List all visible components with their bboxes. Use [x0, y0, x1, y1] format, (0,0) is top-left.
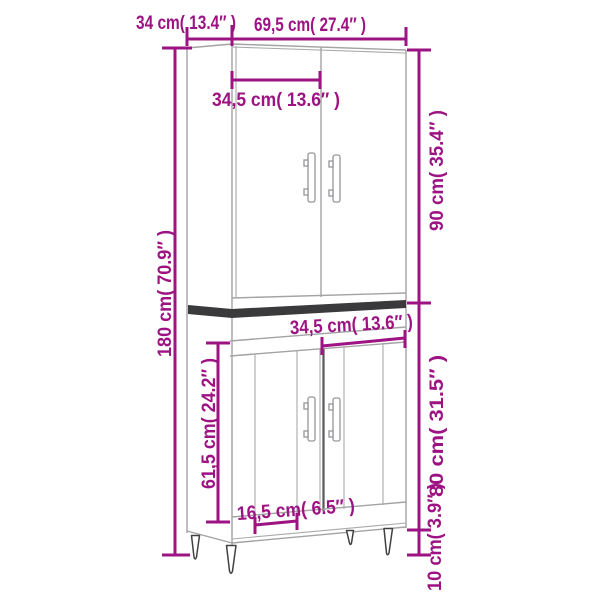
- handle-bar: [333, 398, 340, 441]
- upper-right-door-handle: [329, 155, 340, 202]
- handle-screw: [329, 404, 333, 410]
- upper-doors-bottom-edge: [232, 293, 406, 298]
- dim-depth-label: 34 cm( 13.4″ ): [136, 12, 236, 34]
- cabinet-top-front-edge: [232, 47, 406, 53]
- dim-upper-door-width: [232, 71, 320, 89]
- lower-right-door-handle: [329, 398, 340, 441]
- handle-screw: [329, 431, 333, 437]
- handle-bar: [333, 155, 340, 202]
- leg-back-left: [192, 536, 200, 560]
- handle-screw: [304, 403, 308, 409]
- cabinet-drawing: [187, 44, 406, 573]
- upper-left-door-handle: [304, 153, 315, 202]
- handle-screw: [304, 160, 308, 166]
- divider-band-side: [188, 305, 232, 318]
- handle-screw: [304, 189, 308, 195]
- dim-upper-height-label: 90 cm( 35.4″ ): [426, 110, 448, 231]
- base-bottom-front-edge: [232, 527, 406, 543]
- dim-leg-height-label: 10 cm( 3.9″ ): [424, 483, 446, 591]
- product-dimension-diagram: 34 cm( 13.4″ ) 69,5 cm( 27.4″ ) 34,5 cm(…: [0, 0, 600, 600]
- dim-lower-door-height-label: 61,5 cm( 24.2″ ): [198, 358, 220, 489]
- dim-lower-height-label: 80 cm( 31.5″ ): [426, 355, 448, 497]
- dim-lower-door-width-label: 34,5 cm( 13.6″ ): [289, 311, 413, 339]
- dim-panel-width-label: 16,5 cm( 6.5″ ): [236, 495, 355, 525]
- dim-width-label: 69,5 cm( 27.4″ ): [254, 14, 366, 36]
- cabinet-legs: [192, 529, 393, 574]
- handle-screw: [329, 190, 333, 196]
- handle-bar: [308, 153, 315, 202]
- lower-doors-top-edge: [230, 342, 406, 356]
- lower-left-door-handle: [304, 397, 315, 441]
- handle-screw: [329, 161, 333, 167]
- leg-front-left: [227, 546, 237, 574]
- handle-screw: [304, 431, 308, 437]
- dim-upper-door-width-label: 34,5 cm( 13.6″ ): [212, 89, 340, 111]
- handle-bar: [308, 397, 315, 441]
- diagram-canvas: 34 cm( 13.4″ ) 69,5 cm( 27.4″ ) 34,5 cm(…: [0, 0, 600, 600]
- leg-front-right: [384, 529, 393, 555]
- dim-total-height-label: 180 cm( 70.9″ ): [154, 230, 176, 357]
- leg-back-right: [347, 531, 354, 545]
